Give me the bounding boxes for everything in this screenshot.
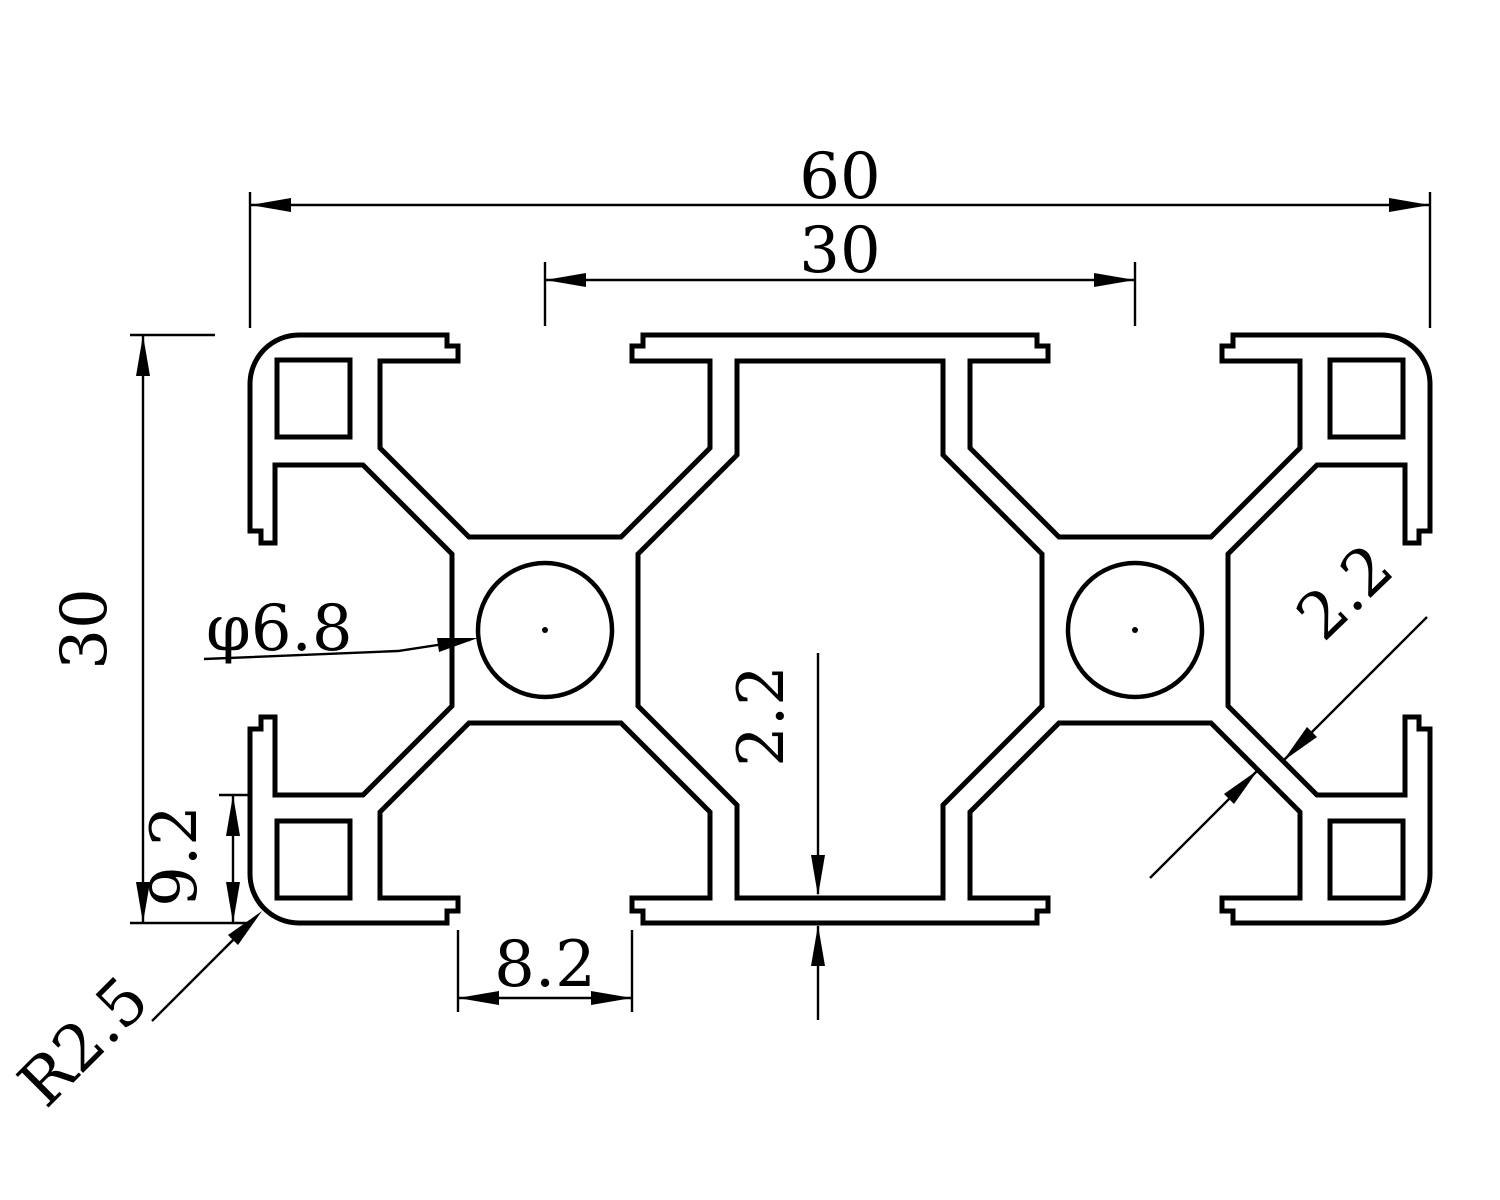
dim-slot-pitch: 30 (545, 214, 1135, 326)
dim-label-overall-width: 60 (799, 140, 880, 214)
dim-label-side-ledge: 9.2 (138, 805, 212, 907)
dim-label-corner-radius: R2.5 (5, 963, 163, 1121)
dim-corner-radius: R2.5 (5, 911, 262, 1121)
dim-slot-opening: 8.2 (458, 928, 632, 1012)
drawing-canvas: 60 30 30 9.2 8.2 (0, 0, 1500, 1200)
corner-hole-bottom-right (1330, 821, 1403, 898)
dim-web-thickness: 2.2 (1150, 531, 1427, 878)
dim-side-ledge: 9.2 (138, 795, 248, 923)
dim-label-slot-pitch: 30 (799, 214, 880, 288)
corner-hole-top-right (1330, 360, 1403, 437)
dim-label-web-thickness: 2.2 (1283, 531, 1408, 655)
dim-hole-diameter: φ6.8 (204, 592, 478, 666)
center-cavity (638, 361, 1042, 898)
dim-label-hole-diameter: φ6.8 (206, 592, 353, 666)
dim-label-slot-opening: 8.2 (494, 928, 596, 1002)
profile-outline (250, 335, 1430, 923)
corner-hole-bottom-left (277, 821, 350, 898)
bolt-hole-left-center-mark (542, 627, 548, 633)
corner-hole-top-left (277, 360, 350, 437)
dim-label-wall-thickness: 2.2 (725, 665, 799, 767)
dim-wall-thickness: 2.2 (725, 653, 825, 1020)
dim-label-overall-height: 30 (48, 588, 122, 669)
profile-geometry (250, 335, 1430, 923)
extrusion-profile-drawing: 60 30 30 9.2 8.2 (0, 0, 1500, 1200)
bolt-hole-right-center-mark (1132, 627, 1138, 633)
